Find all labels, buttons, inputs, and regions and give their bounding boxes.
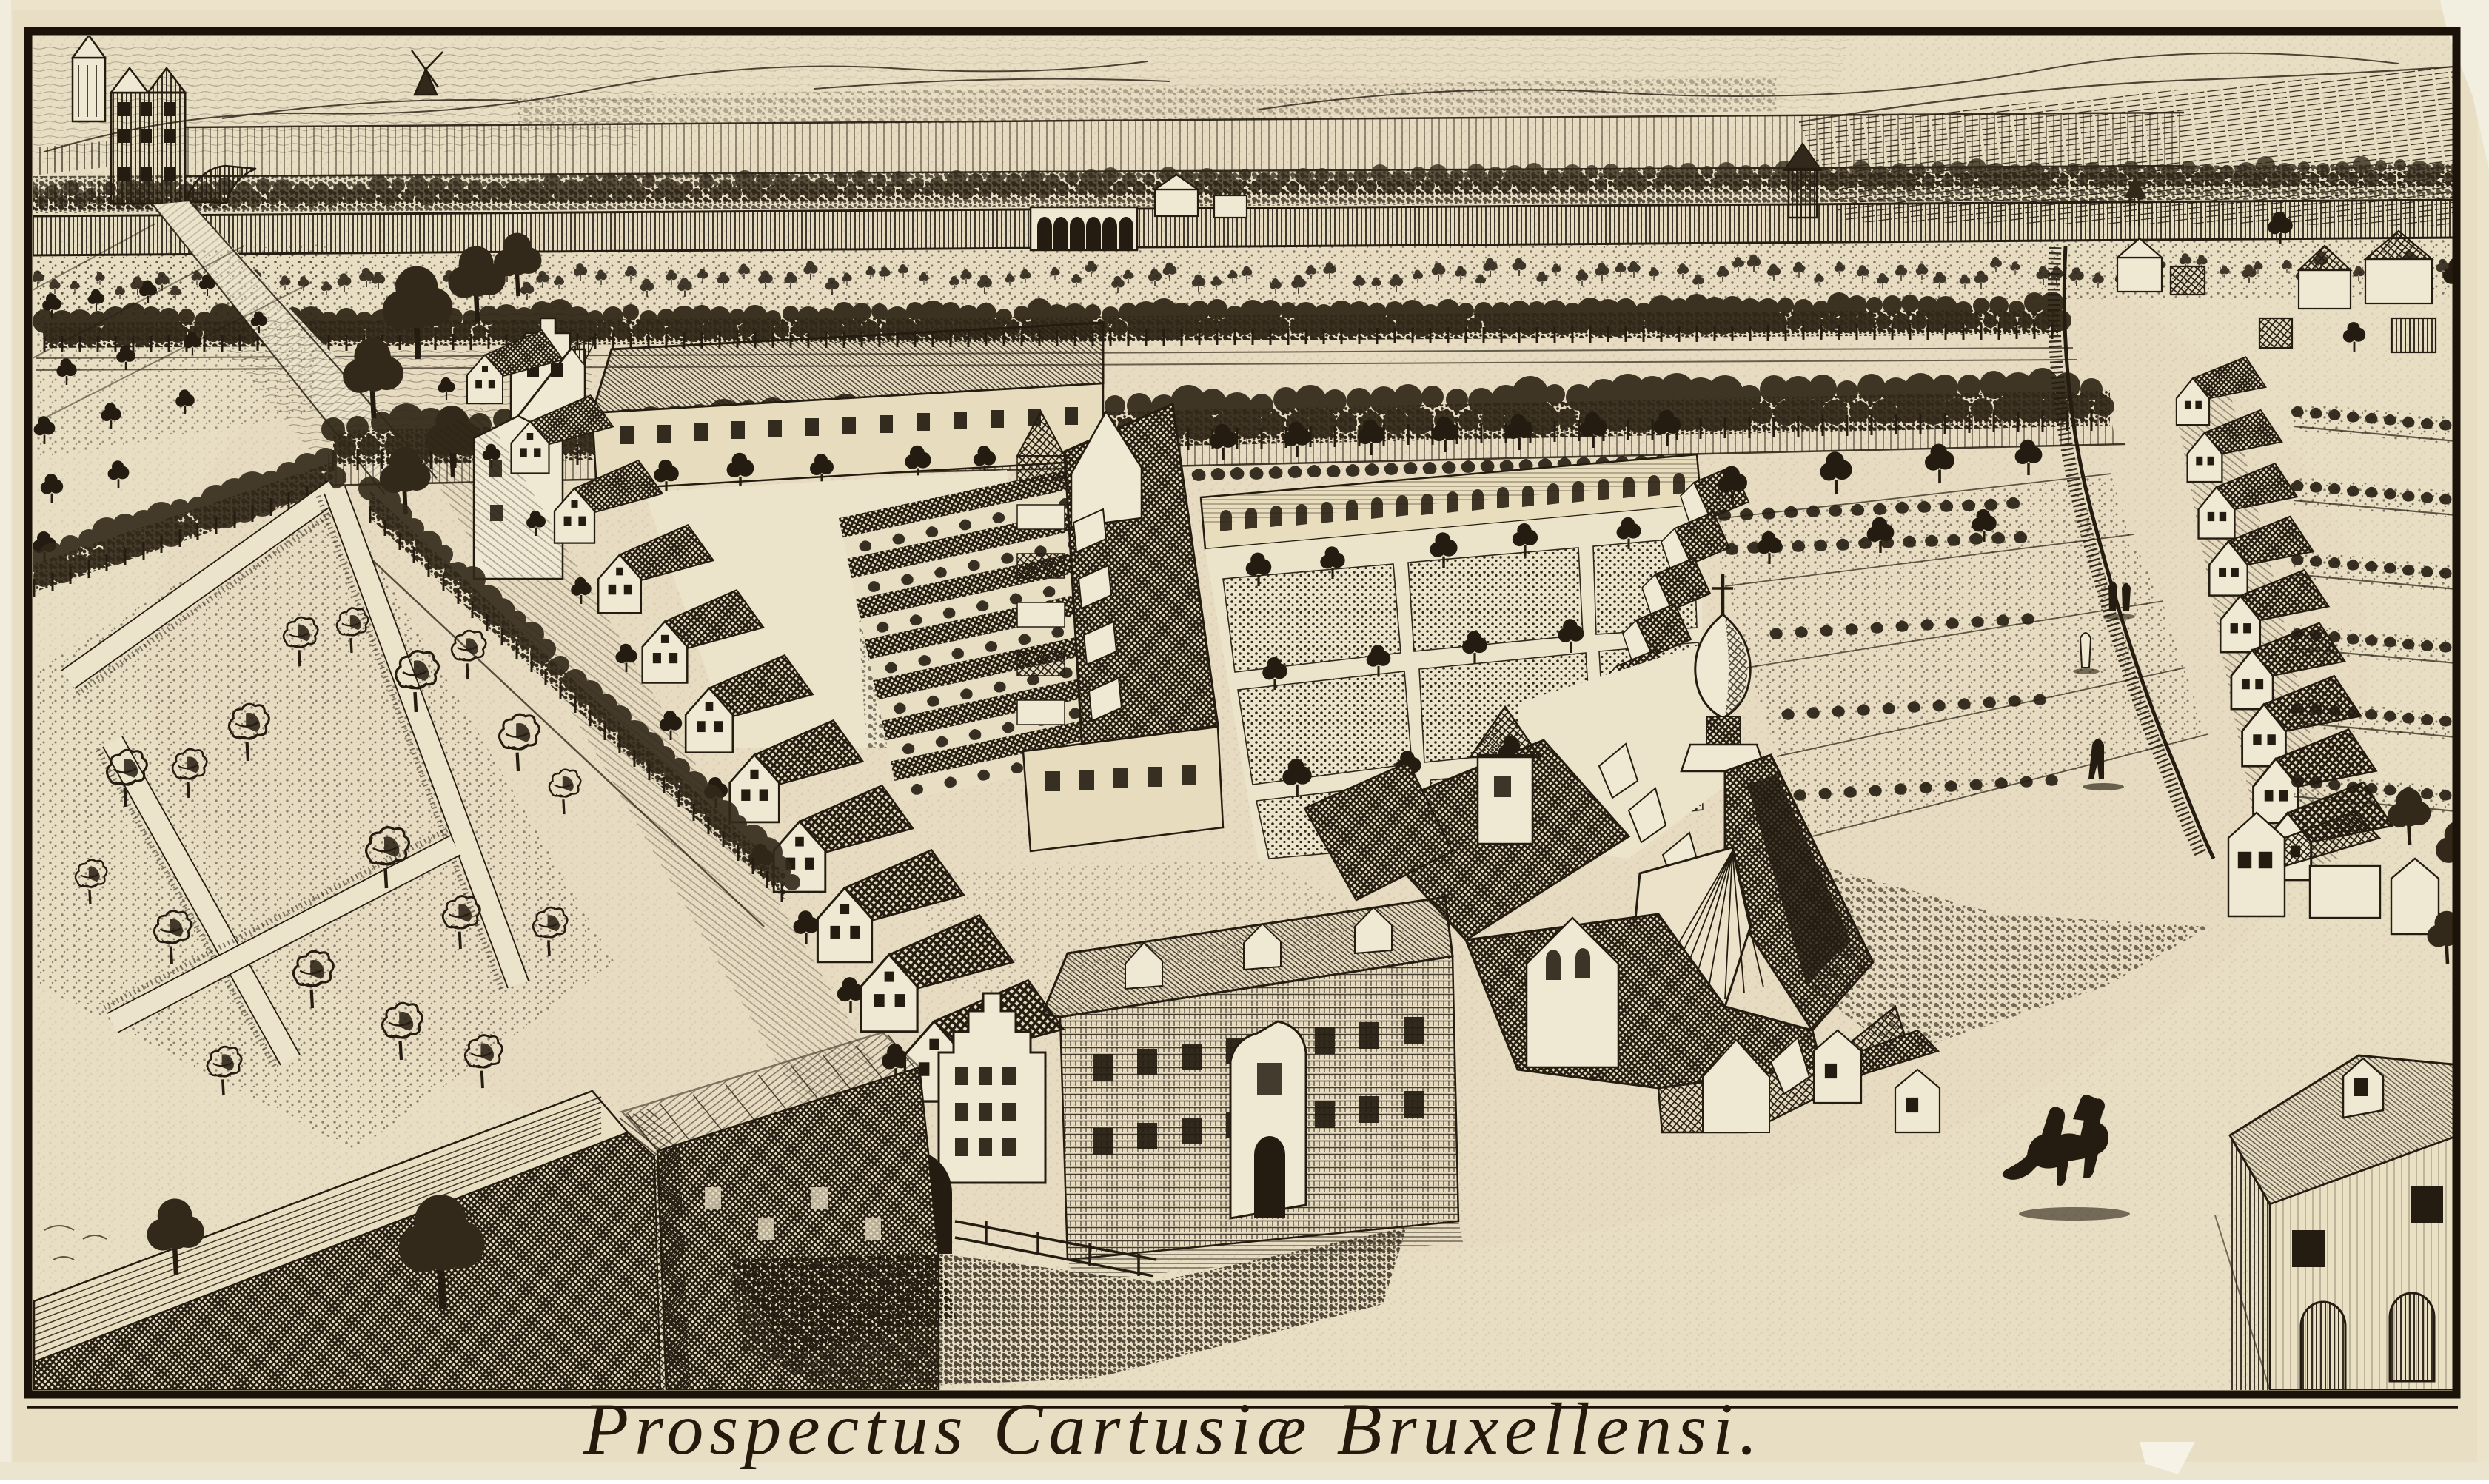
svg-text:Prospectus Cartusiæ Bruxellens: Prospectus Cartusiæ Bruxellensi. <box>583 1388 1763 1470</box>
